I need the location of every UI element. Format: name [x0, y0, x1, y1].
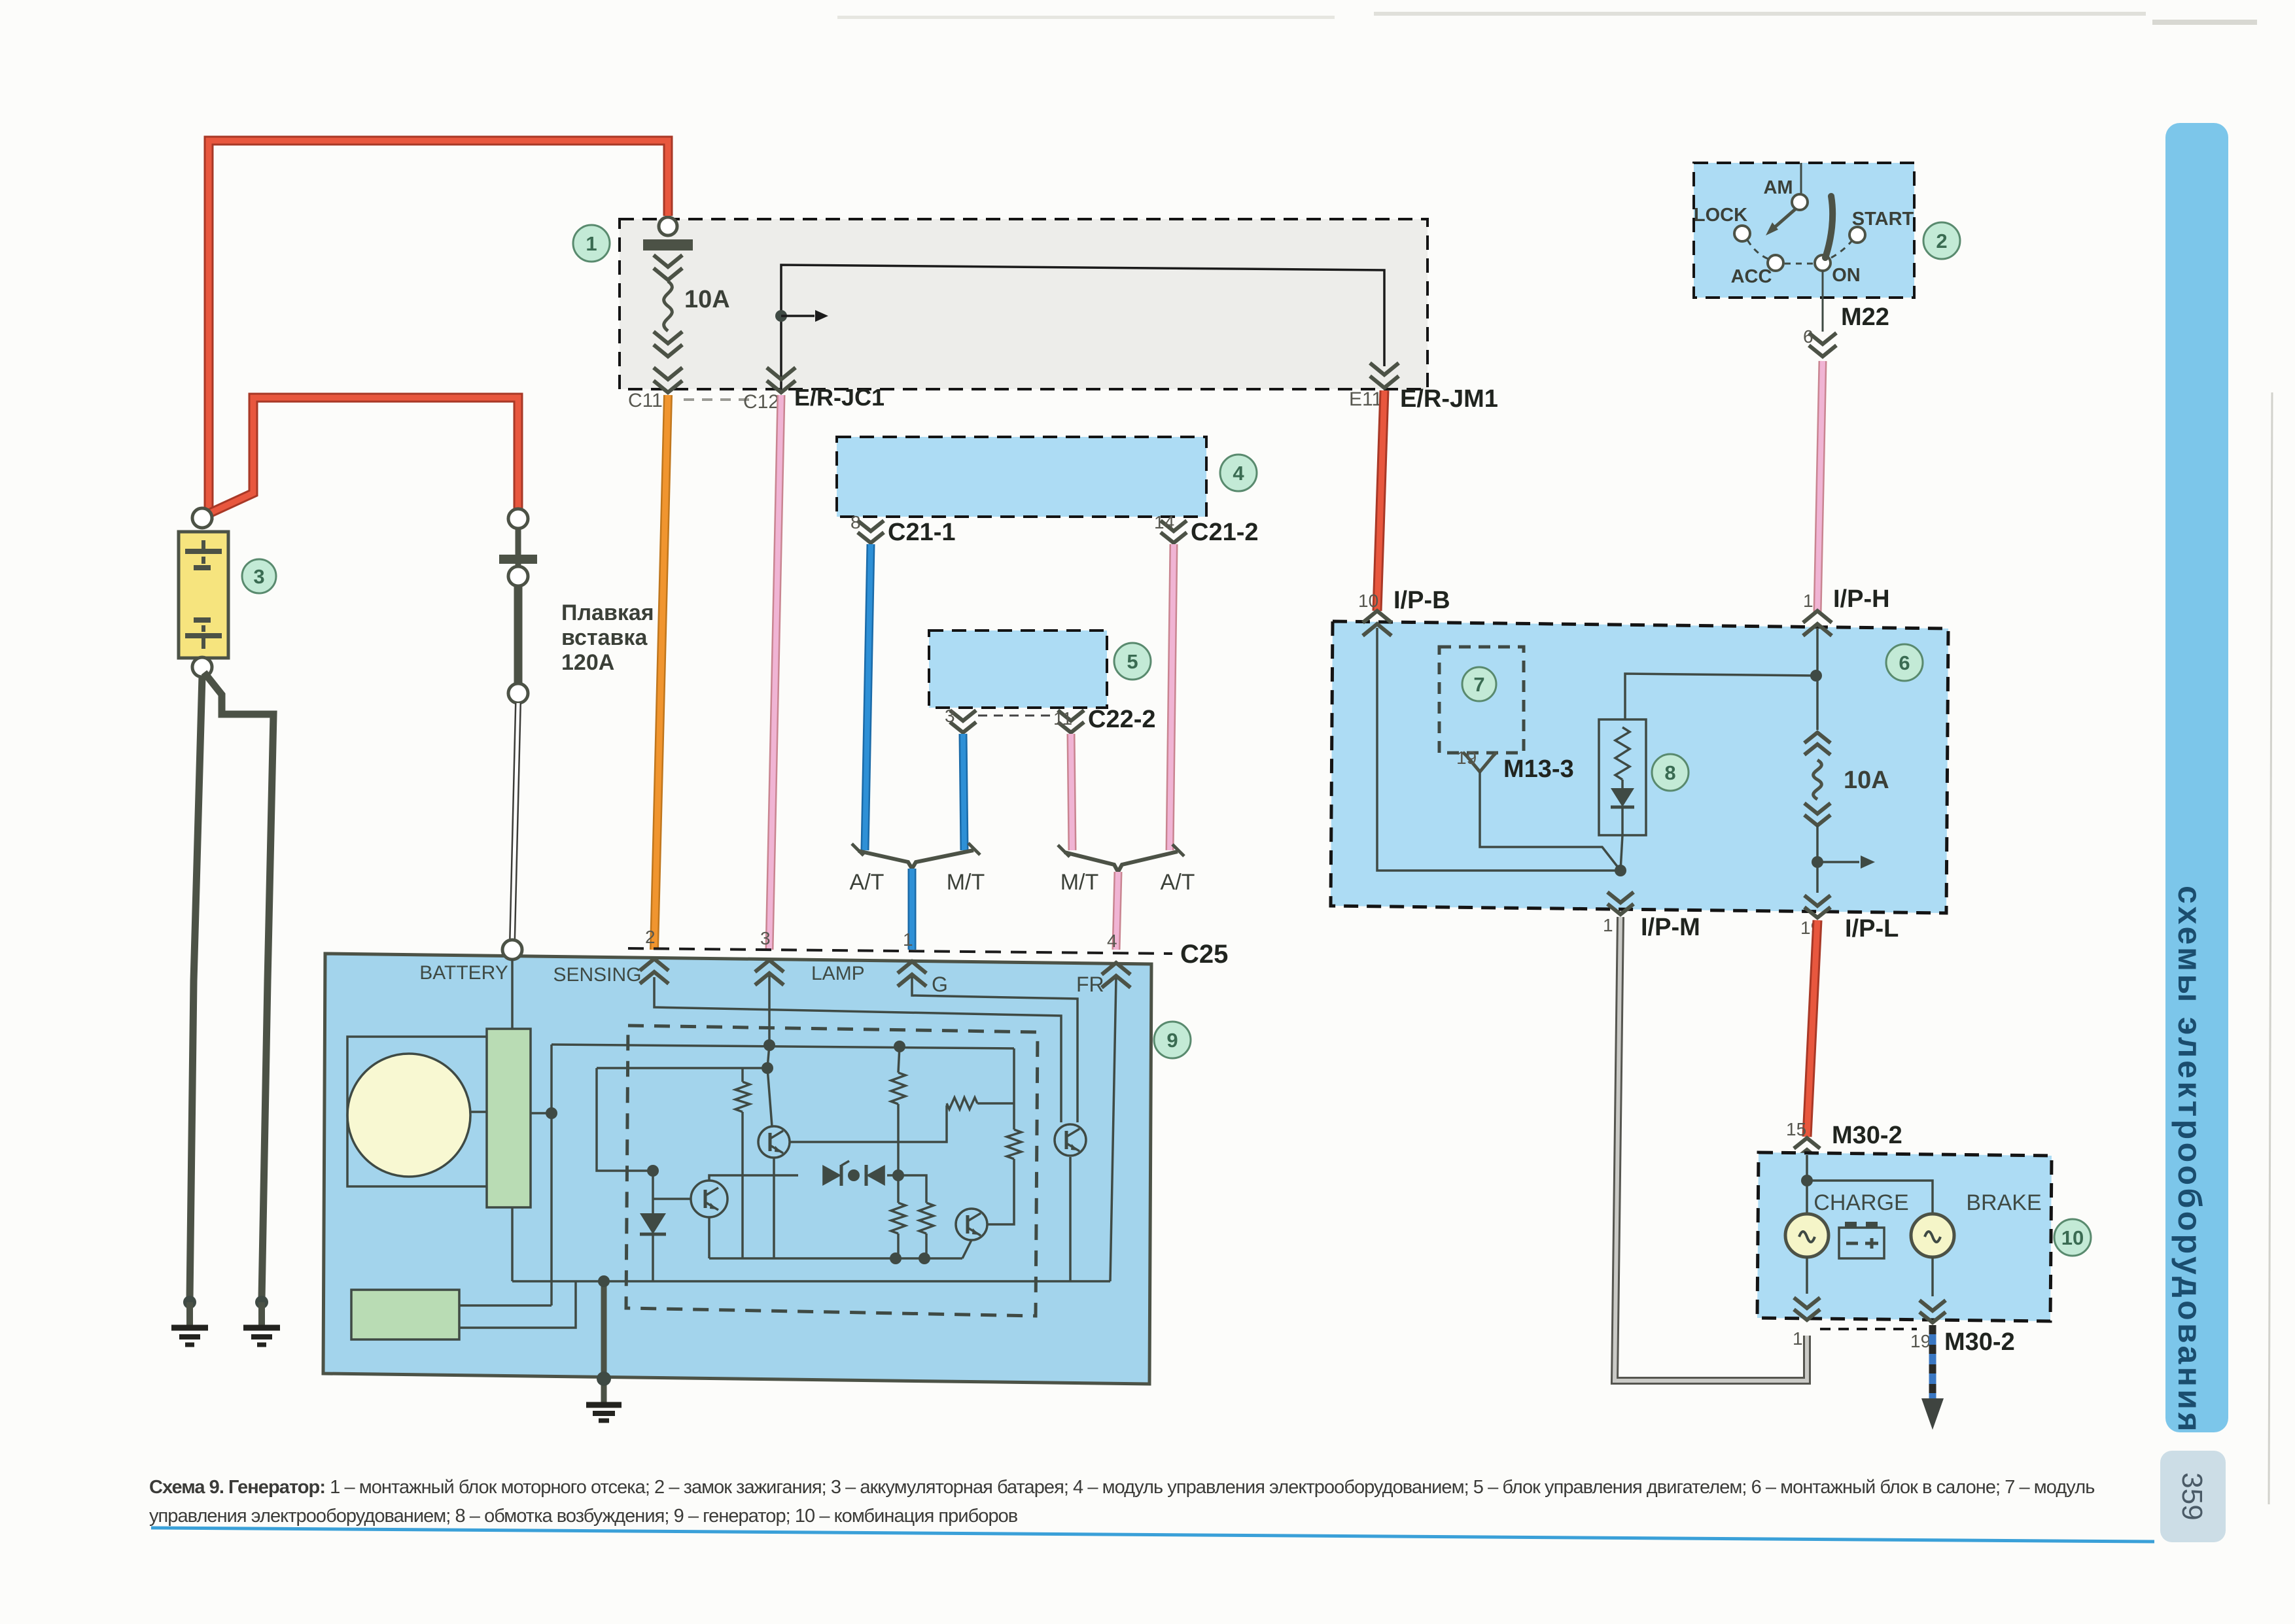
svg-text:15: 15 [1786, 1119, 1806, 1139]
svg-text:C21-2: C21-2 [1191, 519, 1259, 546]
svg-text:AM: AM [1763, 177, 1793, 198]
svg-text:I/P-L: I/P-L [1845, 915, 1899, 942]
svg-text:вставка: вставка [561, 625, 648, 650]
svg-text:Схема 9. Генератор: 1 – монтаж: Схема 9. Генератор: 1 – монтажный блок м… [149, 1477, 2094, 1498]
svg-text:I/P-M: I/P-M [1641, 914, 1700, 941]
svg-text:LOCK: LOCK [1694, 205, 1747, 226]
svg-text:E11: E11 [1349, 389, 1382, 410]
svg-text:4: 4 [1107, 931, 1117, 951]
svg-text:M22: M22 [1841, 303, 1889, 331]
svg-text:E/R-JM1: E/R-JM1 [1400, 385, 1498, 413]
svg-text:FR: FR [1076, 973, 1104, 996]
svg-text:10: 10 [2061, 1226, 2084, 1249]
svg-text:1: 1 [1603, 915, 1613, 935]
svg-text:9: 9 [1166, 1029, 1178, 1052]
svg-text:6: 6 [1899, 651, 1910, 674]
svg-text:359: 359 [2176, 1472, 2208, 1520]
svg-text:8: 8 [850, 512, 861, 532]
svg-text:4: 4 [1233, 462, 1244, 485]
svg-text:ACC: ACC [1731, 266, 1772, 287]
svg-text:1: 1 [586, 232, 597, 255]
svg-text:10A: 10A [684, 286, 730, 313]
svg-text:10: 10 [1358, 591, 1378, 611]
svg-text:C11: C11 [628, 390, 663, 411]
svg-text:10A: 10A [1844, 767, 1889, 794]
svg-text:A/T: A/T [1161, 870, 1195, 895]
svg-text:5: 5 [1127, 650, 1138, 673]
svg-text:CHARGE: CHARGE [1813, 1190, 1908, 1215]
svg-text:SENSING: SENSING [553, 964, 641, 986]
svg-text:управления электрооборудование: управления электрооборудованием; 8 – обм… [149, 1506, 1018, 1527]
svg-text:M30-2: M30-2 [1944, 1328, 2015, 1356]
svg-text:6: 6 [1803, 326, 1813, 347]
svg-text:BATTERY: BATTERY [419, 962, 508, 984]
svg-text:3: 3 [945, 706, 955, 726]
svg-text:I/P-H: I/P-H [1833, 585, 1890, 613]
svg-text:BRAKE: BRAKE [1966, 1190, 2041, 1215]
svg-text:START: START [1852, 209, 1914, 230]
svg-text:2: 2 [1936, 230, 1947, 252]
svg-text:I/P-B: I/P-B [1393, 587, 1450, 614]
svg-text:M/T: M/T [1060, 870, 1099, 895]
svg-text:11: 11 [1053, 708, 1072, 729]
svg-text:1: 1 [903, 929, 913, 950]
svg-text:3: 3 [253, 565, 264, 588]
svg-text:8: 8 [1664, 761, 1675, 784]
svg-text:Плавкая: Плавкая [561, 600, 654, 625]
svg-text:M13-3: M13-3 [1503, 755, 1574, 783]
svg-text:7: 7 [1473, 673, 1484, 696]
svg-text:C25: C25 [1180, 940, 1228, 969]
svg-text:ON: ON [1832, 265, 1861, 286]
svg-text:1: 1 [1803, 591, 1813, 611]
svg-text:G: G [932, 973, 948, 996]
svg-text:A/T: A/T [850, 870, 885, 895]
svg-text:2: 2 [645, 927, 656, 947]
svg-text:схемы электрооборудования: схемы электрооборудования [2171, 886, 2208, 1434]
svg-text:C22-2: C22-2 [1088, 706, 1156, 733]
svg-text:M30-2: M30-2 [1832, 1122, 1902, 1149]
svg-text:3: 3 [760, 928, 771, 948]
svg-text:1: 1 [1793, 1328, 1803, 1349]
svg-text:E/R-JC1: E/R-JC1 [794, 384, 885, 411]
svg-text:19: 19 [1910, 1331, 1931, 1351]
svg-text:14: 14 [1154, 512, 1174, 532]
svg-text:C12: C12 [743, 391, 779, 413]
svg-text:C21-1: C21-1 [888, 519, 956, 546]
svg-text:LAMP: LAMP [811, 963, 865, 984]
svg-text:120А: 120А [561, 650, 614, 675]
svg-text:M/T: M/T [947, 870, 985, 895]
svg-text:19: 19 [1456, 748, 1477, 768]
